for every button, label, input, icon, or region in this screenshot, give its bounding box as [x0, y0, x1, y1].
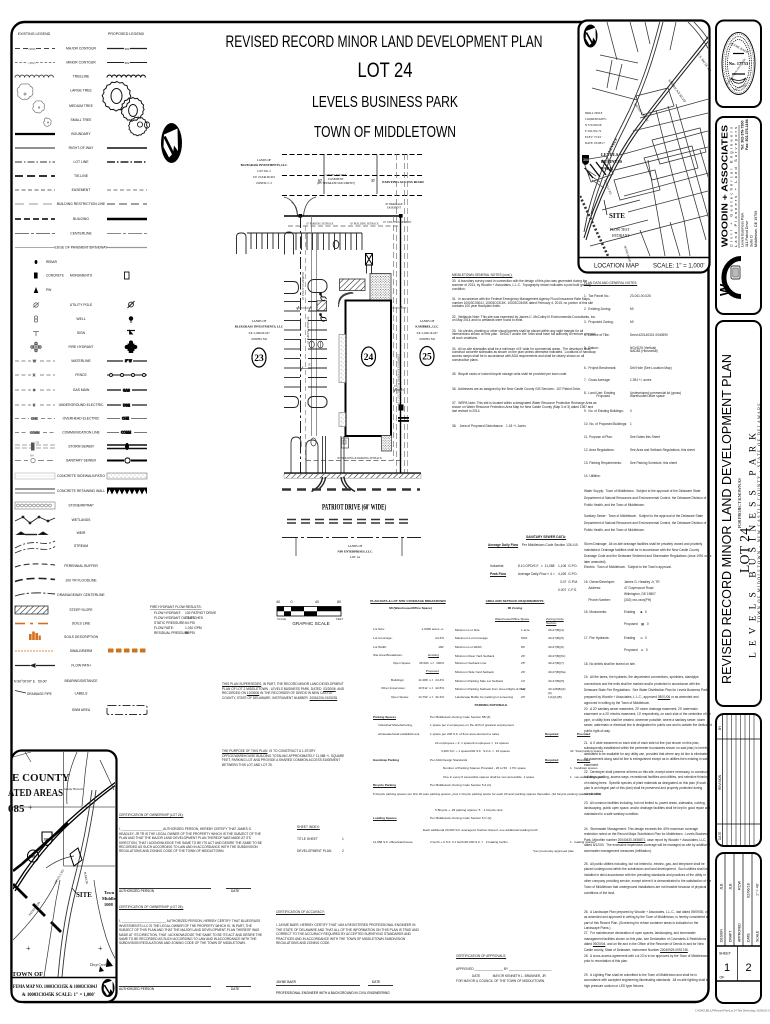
svg-text:WEIR: WEIR: [77, 531, 86, 535]
svg-text:54 PSI: 54 PSI: [185, 621, 195, 625]
svg-text:DATE: DATE: [718, 832, 722, 840]
svg-text:Fax: 302-376-1194: Fax: 302-376-1194: [745, 119, 749, 150]
svg-text:BUILDING: BUILDING: [73, 217, 89, 221]
svg-text:LANDS OF: LANDS OF: [420, 319, 435, 323]
svg-text:JLB: JLB: [720, 883, 724, 890]
svg-text:301: 301: [44, 837, 50, 842]
svg-text:LANDS OF: LANDS OF: [348, 544, 363, 548]
svg-text:LEVELS BUSINESS PARK: LEVELS BUSINESS PARK: [312, 94, 459, 111]
svg-text:OHE: OHE: [31, 417, 38, 421]
svg-text:E: E: [33, 403, 35, 407]
svg-text:EASEMENT: EASEMENT: [387, 207, 401, 210]
svg-text:15': 15': [394, 384, 398, 388]
svg-text:30': 30': [309, 362, 312, 366]
svg-text:(BY SEPARATE DOCUMENT): (BY SEPARATE DOCUMENT): [317, 181, 355, 185]
svg-text:NPS ENTERPRISES, LLC: NPS ENTERPRISES, LLC: [338, 550, 373, 554]
svg-text:PATRIOT DRIVE (60' WIDE): PATRIOT DRIVE (60' WIDE): [322, 503, 386, 512]
svg-text:SITE: SITE: [609, 212, 625, 220]
svg-text:Middletown, DE 19709: Middletown, DE 19709: [754, 211, 758, 247]
svg-text:APPROVED: APPROVED: [738, 923, 742, 942]
svg-text:SHEET: SHEET: [719, 952, 732, 956]
svg-text:085: 085: [8, 803, 25, 815]
svg-text:REVISED RECORD MINOR LAND DEVE: REVISED RECORD MINOR LAND DEVELOPMENT PL…: [720, 354, 734, 684]
svg-text:N 90°00'00" E 50.00': N 90°00'00" E 50.00': [14, 680, 47, 684]
svg-text:DESIGN: DESIGN: [720, 928, 724, 942]
svg-text:GRAPHIC SCALE: GRAPHIC SCALE: [292, 621, 329, 626]
svg-text:CONCRETE RETAINING WALL: CONCRETE RETAINING WALL: [57, 489, 105, 493]
svg-text:TIE-LINE: TIE-LINE: [74, 174, 89, 178]
svg-text:TOWN OF MIDDLETOWN - NEW CASTL: TOWN OF MIDDLETOWN - NEW CASTLE COUNTY -…: [757, 403, 762, 623]
svg-text:REVISION: REVISION: [718, 774, 722, 790]
svg-text:SOILS DESCRIPTION: SOILS DESCRIPTION: [64, 635, 99, 639]
svg-text:SWALE/BERM: SWALE/BERM: [70, 649, 93, 653]
svg-text:T.P. 2-046.16-027: T.P. 2-046.16-027: [416, 331, 438, 335]
svg-text:20' UTILITY EASEMENT: 20' UTILITY EASEMENT: [302, 271, 305, 300]
svg-text:UGE: UGE: [123, 403, 130, 407]
svg-text:+: +: [28, 803, 33, 812]
svg-text:PROPOSED LEGEND: PROPOSED LEGEND: [108, 32, 145, 36]
svg-text:BUSINESS: BUSINESS: [601, 159, 623, 164]
svg-text:X: X: [33, 373, 35, 377]
svg-text:FLOW RATE:: FLOW RATE:: [154, 626, 174, 630]
svg-text:DATE: 03/08/17: DATE: 03/08/17: [585, 141, 605, 145]
svg-text:SANITARY SEWER: SANITARY SEWER: [66, 459, 97, 463]
svg-text:FENCE: FENCE: [75, 373, 87, 377]
svg-text:FLOW HYDRANT:: FLOW HYDRANT:: [154, 611, 181, 615]
svg-text:STORM SEWER: STORM SEWER: [68, 445, 94, 449]
svg-text:Tel: 302-376-7300: Tel: 302-376-7300: [741, 120, 745, 150]
svg-text:(382): (382): [28, 61, 35, 65]
svg-text:COMM: COMM: [30, 431, 40, 435]
svg-text:STONE/RIPRAP: STONE/RIPRAP: [68, 504, 94, 508]
svg-text:304: 304: [583, 158, 589, 162]
svg-text:COORDINATES:: COORDINATES:: [585, 117, 607, 121]
svg-text:FLOW PATH: FLOW PATH: [71, 664, 91, 668]
svg-text:LOT NO. 2: LOT NO. 2: [257, 169, 271, 173]
svg-text:PIN: PIN: [46, 288, 52, 292]
svg-text:FIRE HYDRANT FLOW RESULTS:: FIRE HYDRANT FLOW RESULTS:: [150, 605, 202, 609]
svg-text:T.P. 23-046.00-001: T.P. 23-046.00-001: [253, 175, 276, 179]
svg-text:W: W: [717, 283, 732, 296]
svg-text:G: G: [33, 388, 36, 392]
svg-text:EXISTING LEGEND: EXISTING LEGEND: [18, 32, 51, 36]
svg-text:CONCRETE SIDEWALK/PATIO: CONCRETE SIDEWALK/PATIO: [57, 474, 105, 478]
svg-text:& 10003C0345K SCALE: 1" = 1,0: & 10003C0345K SCALE: 1" = 1,000': [22, 993, 96, 998]
svg-text:SOILS LINE: SOILS LINE: [72, 622, 91, 626]
svg-text:WOODIN + ASSOCIATES: WOODIN + ASSOCIATES: [721, 124, 730, 247]
svg-text:Deep Creek: Deep Creek: [89, 963, 107, 967]
svg-text:LOT 1A: LOT 1A: [350, 555, 361, 559]
svg-text:CENTERLINE: CENTERLINE: [70, 232, 92, 236]
svg-text:MONUMENTS: MONUMENTS: [70, 274, 93, 278]
svg-text:40: 40: [276, 600, 280, 604]
svg-text:KAMBREL, LLC: KAMBREL, LLC: [415, 325, 438, 329]
svg-text:TREELINE: TREELINE: [73, 75, 90, 79]
svg-text:LARGE TREE: LARGE TREE: [70, 89, 92, 93]
svg-text:30': 30': [371, 179, 376, 183]
svg-text:FOR PROJECT KNOWN AS: FOR PROJECT KNOWN AS: [737, 478, 742, 528]
svg-text:DRAINAGEWAY CENTERLINE: DRAINAGEWAY CENTERLINE: [57, 593, 105, 597]
svg-text:BEARING/DISTANCE: BEARING/DISTANCE: [64, 679, 98, 683]
svg-text:PERENNIAL BUFFER: PERENNIAL BUFFER: [64, 564, 98, 568]
svg-text:2.5 INCHES: 2.5 INCHES: [185, 616, 204, 620]
svg-text:C:\DWG\JBL\LP\Record Plan\Lot: C:\DWG\JBL\LP\Record Plan\Lot 24 Title S…: [695, 1009, 770, 1013]
svg-text:MINOR CONTOUR: MINOR CONTOUR: [66, 61, 96, 65]
svg-text:LOT 24: LOT 24: [358, 58, 413, 82]
svg-text:ZONED: MI: ZONED: MI: [419, 337, 434, 341]
svg-text:40: 40: [315, 600, 319, 604]
svg-text:UTILITY POLE: UTILITY POLE: [70, 303, 93, 307]
svg-text:1,010 GPM: 1,010 GPM: [185, 626, 202, 630]
svg-text:02/06/18: 02/06/18: [747, 883, 751, 898]
svg-text:102 PATRIOT DRIVE: 102 PATRIOT DRIVE: [185, 611, 217, 615]
svg-text:SCALE: SCALE: [756, 930, 760, 942]
svg-text:10' PARKING SETBACK: 10' PARKING SETBACK: [306, 223, 334, 226]
svg-text:299: 299: [29, 854, 35, 859]
svg-text:DATE: DATE: [747, 932, 751, 942]
svg-text:FEET: FEET: [336, 617, 343, 621]
svg-text:HYDRANT: HYDRANT: [612, 234, 630, 238]
svg-text:No. 17753: No. 17753: [729, 61, 749, 66]
svg-text:Town: Town: [104, 890, 115, 895]
svg-text:UNDERGROUND ELECTRIC: UNDERGROUND ELECTRIC: [59, 403, 104, 407]
svg-text:LANDS OF: LANDS OF: [257, 158, 271, 162]
svg-text:SIGN: SIGN: [77, 331, 86, 335]
svg-text:100 YR FLOODLINE: 100 YR FLOODLINE: [65, 579, 97, 583]
svg-text:BLUEGRASS INVESTMENTS, LLC: BLUEGRASS INVESTMENTS, LLC: [235, 325, 283, 329]
svg-text:EXISTING ACCESS ROAD: EXISTING ACCESS ROAD: [382, 180, 424, 184]
svg-text:LOT LINE: LOT LINE: [73, 160, 89, 164]
svg-text:BUILDING RESTRICTION LINE: BUILDING RESTRICTION LINE: [57, 202, 106, 206]
svg-text:1: 1: [724, 962, 730, 974]
svg-text:GAS MAIN: GAS MAIN: [73, 388, 90, 392]
svg-text:24: 24: [364, 353, 374, 363]
svg-text:E COUNTY: E COUNTY: [12, 772, 70, 784]
svg-text:+: +: [26, 944, 31, 953]
svg-text:20' + 15' UTILITY & DRAINAGE E: 20' + 15' UTILITY & DRAINAGE EASEMENT: [398, 354, 401, 405]
svg-text:BLUEGRASS INVESTMENTS, LLC: BLUEGRASS INVESTMENTS, LLC: [241, 163, 288, 167]
svg-text:LABELS: LABELS: [75, 692, 89, 696]
svg-text:CB: CB: [36, 441, 40, 445]
svg-text:TOWN OF: TOWN OF: [12, 971, 43, 978]
svg-text:OVERHEAD ELECTRIC: OVERHEAD ELECTRIC: [63, 417, 100, 421]
svg-text:REVISED RECORD MINOR LAND DEVE: REVISED RECORD MINOR LAND DEVELOPMENT PL…: [226, 33, 543, 51]
svg-text:DRILL HOLE: DRILL HOLE: [585, 111, 603, 115]
svg-text:EASEMENT: EASEMENT: [72, 188, 91, 192]
svg-text:MH: MH: [30, 454, 34, 458]
svg-text:SCALE: 1" = 1,000': SCALE: 1" = 1,000': [653, 264, 704, 270]
svg-text:2: 2: [746, 962, 752, 974]
svg-text:FEMA MAP NO. 10003C0315K & 10: FEMA MAP NO. 10003C0315K & 10003C0304J: [13, 985, 97, 990]
svg-text:STREAM: STREAM: [74, 544, 88, 548]
svg-text:JLB: JLB: [729, 883, 733, 890]
svg-text:8" W: 8" W: [125, 359, 132, 363]
svg-text:STATIC PRESSURE:: STATIC PRESSURE:: [154, 621, 185, 625]
svg-text:FLOW TEST: FLOW TEST: [610, 228, 630, 232]
svg-text:DRAINAGE PIPE: DRAINAGE PIPE: [27, 692, 52, 696]
svg-text:LANDS OF: LANDS OF: [252, 319, 267, 323]
svg-text:Levels Business Park: Levels Business Park: [741, 212, 745, 247]
svg-text:Sandy Branch: Sandy Branch: [64, 787, 83, 791]
svg-text:(380): (380): [28, 47, 35, 51]
svg-text:1" = 40': 1" = 40': [756, 883, 760, 896]
svg-text:382: 382: [124, 61, 129, 65]
svg-text:OHE: OHE: [122, 417, 129, 421]
svg-text:ZONED: C-3: ZONED: C-3: [256, 181, 272, 185]
svg-text:SITE: SITE: [76, 891, 92, 899]
svg-text:BOUNDARY: BOUNDARY: [71, 132, 91, 136]
svg-text:REBAR: REBAR: [46, 260, 58, 264]
svg-text:23: 23: [254, 354, 264, 364]
svg-text:80: 80: [337, 600, 341, 604]
svg-text:1008: 1008: [104, 902, 114, 907]
svg-text:RIGHT-OF-WAY: RIGHT-OF-WAY: [69, 146, 94, 150]
svg-text:PARK: PARK: [601, 166, 614, 171]
svg-text:OF: OF: [720, 976, 726, 980]
svg-text:STEEP SLOPE: STEEP SLOPE: [69, 608, 93, 612]
svg-text:FIRE HYDRANT: FIRE HYDRANT: [68, 345, 93, 349]
svg-text:ELEV: 75.94': ELEV: 75.94': [585, 135, 602, 139]
svg-text:EDGE OF PAVEMENT/DRIVEWAY: EDGE OF PAVEMENT/DRIVEWAY: [55, 246, 109, 250]
svg-text:Middle: Middle: [102, 896, 115, 901]
svg-text:T.P. 2-046.00-027: T.P. 2-046.00-027: [248, 331, 270, 335]
svg-text:COMMUNICATION LINE: COMMUNICATION LINE: [62, 431, 100, 435]
svg-text:RCW: RCW: [738, 881, 742, 890]
svg-text:SMALL TREE: SMALL TREE: [71, 118, 93, 122]
svg-text:111 Patriot Drive: 111 Patriot Drive: [745, 221, 749, 247]
svg-text:GAS: GAS: [123, 388, 130, 392]
svg-text:LOCATION MAP: LOCATION MAP: [594, 264, 639, 270]
svg-text:W: W: [33, 359, 36, 363]
svg-text:+: +: [98, 944, 103, 953]
svg-text:WELL: WELL: [76, 317, 85, 321]
svg-text:Suite D: Suite D: [750, 235, 754, 247]
svg-text:ATED AREAS: ATED AREAS: [8, 787, 63, 799]
svg-text:380: 380: [124, 47, 129, 51]
svg-text:COMM: COMM: [121, 431, 131, 435]
svg-text:TOWN OF MIDDLETOWN: TOWN OF MIDDLETOWN: [314, 124, 456, 141]
svg-text:WETLANDS: WETLANDS: [72, 518, 92, 522]
svg-text:MEDIUM TREE: MEDIUM TREE: [69, 104, 93, 108]
svg-text:MAJOR CONTOUR: MAJOR CONTOUR: [66, 47, 96, 51]
svg-text:CONCRETE: CONCRETE: [46, 274, 64, 278]
svg-text:30' BUILDING SETBACK: 30' BUILDING SETBACK: [350, 223, 379, 226]
svg-text:WATERLINE: WATERLINE: [71, 359, 91, 363]
svg-text:DRAFT: DRAFT: [729, 931, 733, 942]
svg-text:ZONED: MI: ZONED: MI: [251, 337, 266, 341]
svg-text:LEVELS: LEVELS: [601, 152, 619, 157]
svg-text:SCALE: SCALE: [277, 617, 286, 621]
svg-text:0: 0: [291, 600, 293, 604]
svg-text:50 PSI: 50 PSI: [185, 631, 195, 635]
svg-text:25: 25: [422, 353, 432, 363]
svg-text:SWM AREA: SWM AREA: [72, 708, 91, 712]
